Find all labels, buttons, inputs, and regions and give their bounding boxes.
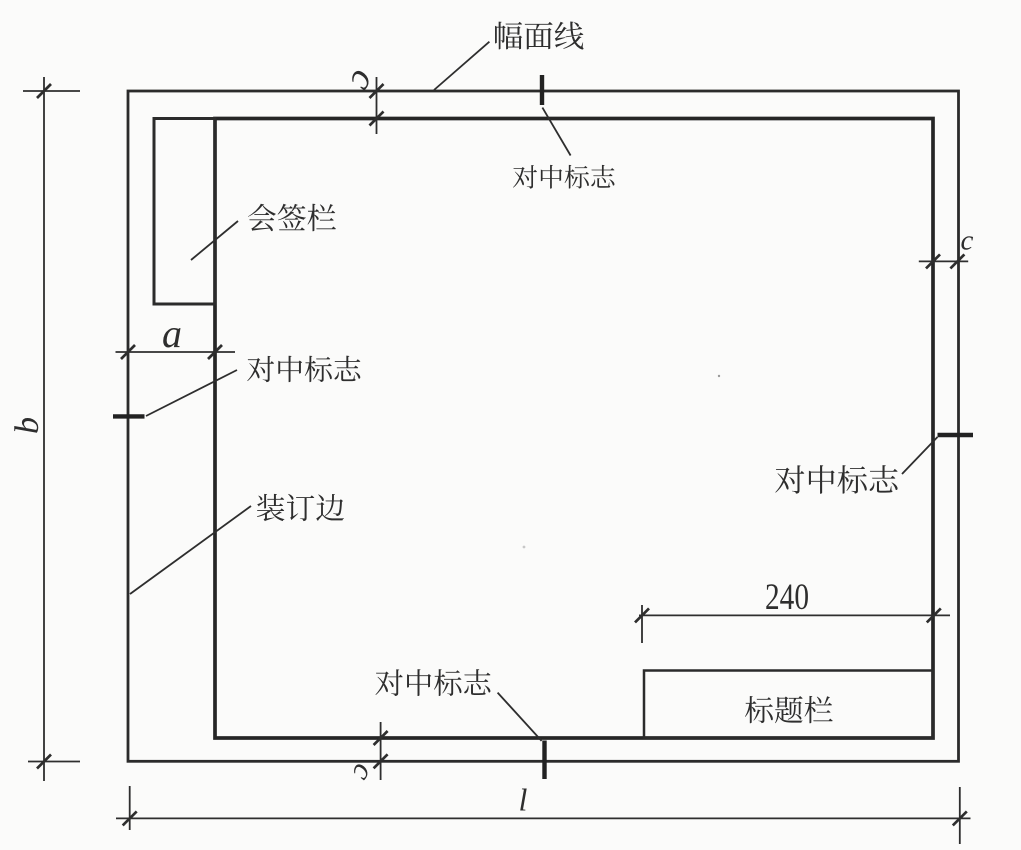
svg-text:l: l <box>519 782 528 818</box>
svg-text:b: b <box>9 417 46 434</box>
svg-text:240: 240 <box>765 577 809 618</box>
svg-text:c: c <box>961 225 974 257</box>
svg-text:a: a <box>162 311 182 356</box>
